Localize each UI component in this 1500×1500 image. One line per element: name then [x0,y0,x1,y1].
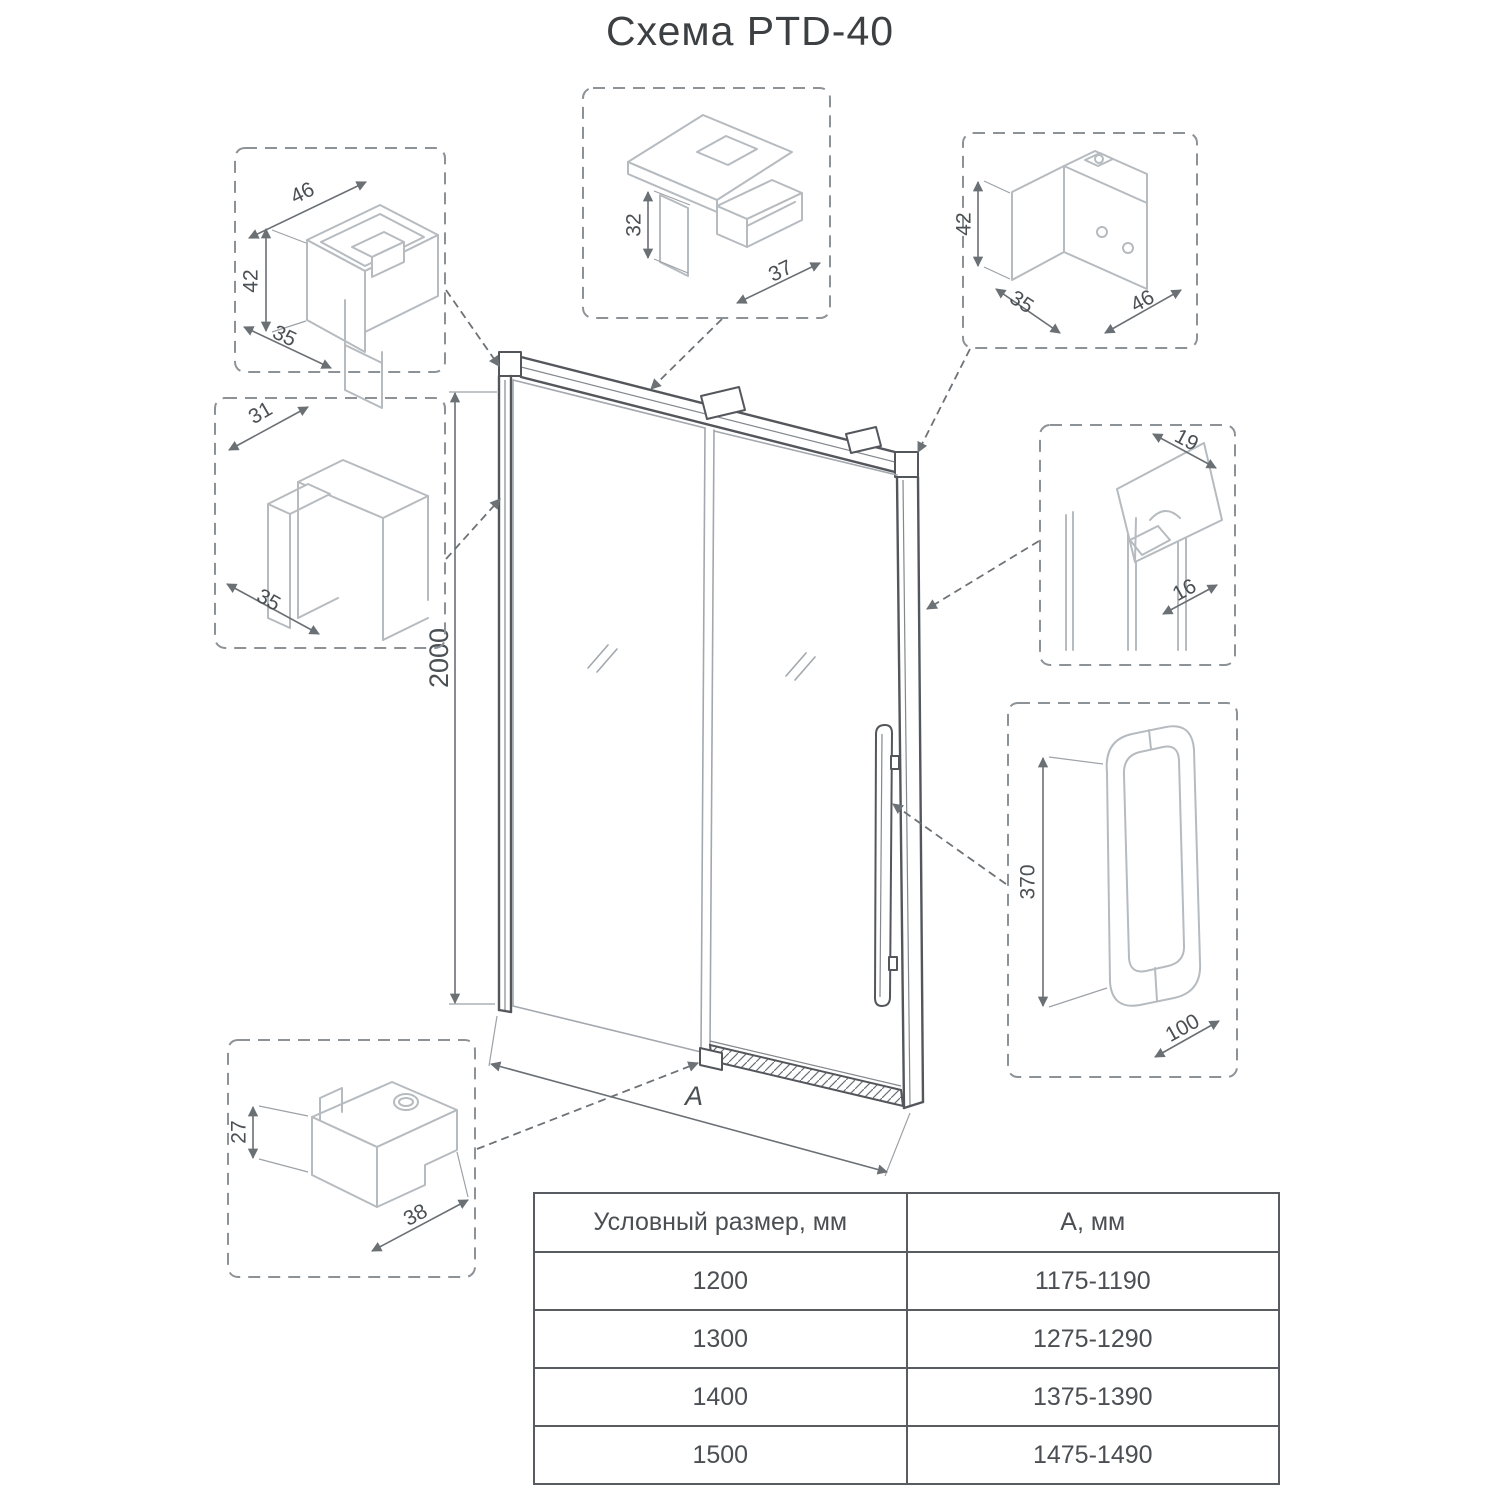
nominal-size-cell: 1200 [534,1252,907,1310]
leader-handle [893,804,1006,884]
table-row: 1500 1475-1490 [534,1426,1279,1484]
height-dimension: 2000 [424,392,497,1004]
a-range-cell: 1475-1490 [907,1426,1280,1484]
dim-100-label: 100 [1162,1010,1204,1047]
size-table-header-row: Условный размер, мм А, мм [534,1193,1279,1252]
dim-35-label: 35 [253,584,285,615]
a-range-cell: 1175-1190 [907,1252,1280,1310]
size-table: Условный размер, мм А, мм 1200 1175-1190… [533,1192,1280,1485]
width-dimension-label: A [683,1081,703,1111]
bottom-guide-shoe [700,1048,722,1070]
detail-seal-profile: 19 16 [1040,425,1235,665]
detail-handle: 370 100 [1008,703,1237,1077]
leader-seal-profile [927,541,1039,609]
roller-clip-left [701,387,745,419]
detail-top-left-bracket: 46 42 35 [235,148,445,408]
dim-42-label: 42 [953,212,976,235]
width-dimension: A [489,1016,910,1176]
dim-37-label: 37 [765,256,796,287]
top-left-corner-cap [499,352,521,376]
col-header-nominal-size: Условный размер, мм [534,1193,907,1252]
glass-symbol-marks [588,645,815,680]
leader-top-left-bracket [446,290,499,366]
height-dimension-label: 2000 [424,628,454,688]
leader-top-right-bracket [918,349,970,452]
nominal-size-cell: 1400 [534,1368,907,1426]
leader-lines [446,290,1039,1149]
door-handle [875,725,899,1006]
schematic-page: Схема PTD-40 [0,0,1500,1500]
dim-32-label: 32 [623,213,646,236]
dim-38-label: 38 [400,1200,431,1231]
dim-31-label: 31 [245,397,277,429]
detail-bottom-bracket: 27 38 [228,1040,475,1277]
dim-46-label: 46 [287,178,318,209]
table-row: 1200 1175-1190 [534,1252,1279,1310]
right-wall-profile [897,477,904,1108]
dim-16-label: 16 [1169,574,1201,605]
fixed-glass-panel [513,380,714,1052]
leader-wall-profile [446,499,500,559]
main-door-drawing: 2000 A [424,352,923,1176]
detail-wall-profile: 31 35 [215,397,445,648]
bottom-slider-rail [710,1045,903,1106]
top-right-corner-cap [895,452,918,477]
dim-46-label: 46 [1127,285,1159,316]
dim-27-label: 27 [228,1120,251,1143]
table-row: 1300 1275-1290 [534,1310,1279,1368]
top-rail-bottom-edge [521,377,895,472]
roller-clip-right [846,427,881,453]
leader-bottom-bracket [477,1063,698,1149]
detail-rail-profile: 32 37 [583,88,830,318]
nominal-size-cell: 1300 [534,1310,907,1368]
a-range-cell: 1375-1390 [907,1368,1280,1426]
dim-370-label: 370 [1017,864,1040,899]
a-range-cell: 1275-1290 [907,1310,1280,1368]
dim-42-label: 42 [240,269,263,292]
nominal-size-cell: 1500 [534,1426,907,1484]
table-row: 1400 1375-1390 [534,1368,1279,1426]
leader-rail-profile [651,319,722,389]
detail-top-right-bracket: 42 35 46 [953,133,1197,348]
dim-35-label: 35 [269,321,300,352]
col-header-a-mm: А, мм [907,1193,1280,1252]
